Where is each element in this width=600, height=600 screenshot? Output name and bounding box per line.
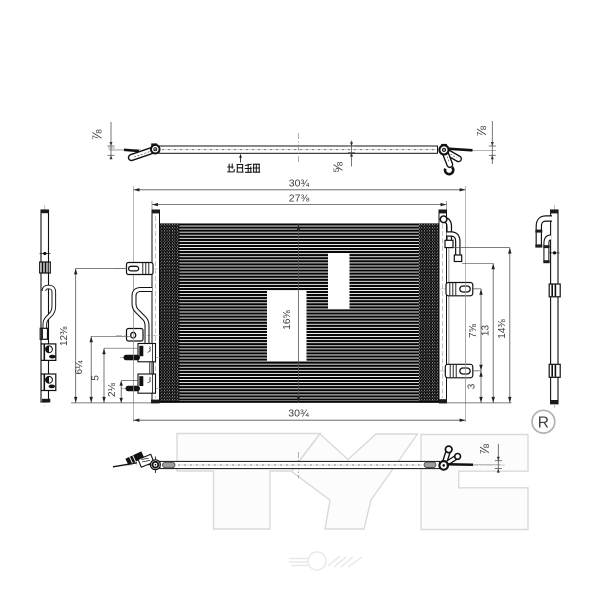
svg-text:⅝: ⅝: [331, 162, 346, 173]
svg-text:3: 3: [467, 383, 478, 389]
svg-text:30¾: 30¾: [288, 407, 309, 419]
svg-text:27⅜: 27⅜: [289, 193, 310, 205]
svg-text:⅞: ⅞: [90, 129, 105, 140]
svg-text:14⅜: 14⅜: [497, 319, 508, 339]
svg-text:R: R: [538, 414, 549, 431]
svg-text:5: 5: [91, 375, 102, 381]
svg-text:12⅜: 12⅜: [59, 326, 70, 346]
svg-text:2⅛: 2⅛: [107, 382, 118, 397]
svg-text:6¼: 6¼: [73, 360, 85, 375]
svg-text:13: 13: [481, 325, 492, 337]
svg-text:16⅝: 16⅝: [282, 310, 293, 330]
svg-text:⅞: ⅞: [474, 126, 489, 137]
svg-text:⅞: ⅞: [477, 444, 492, 455]
svg-text:30¾: 30¾: [289, 178, 310, 190]
svg-text:7⅝: 7⅝: [468, 323, 479, 338]
